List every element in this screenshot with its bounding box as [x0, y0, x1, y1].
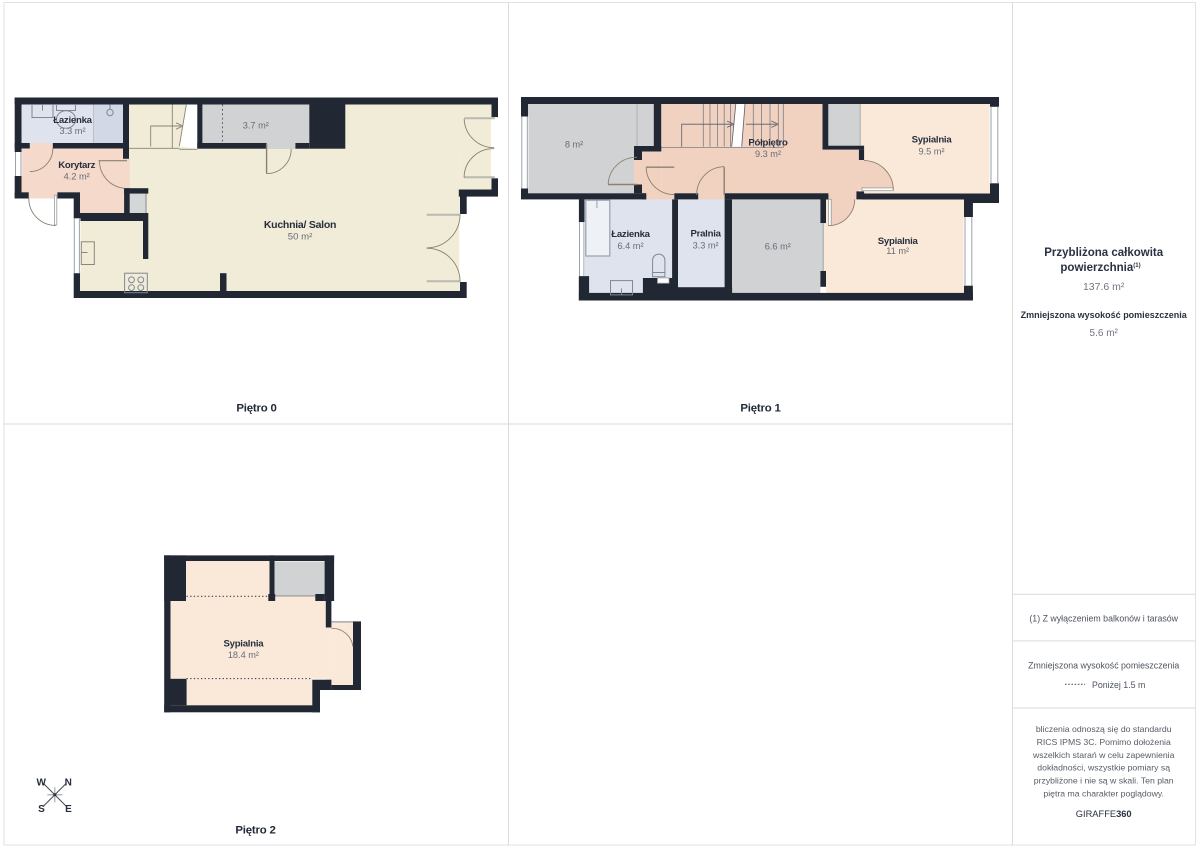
- svg-text:bliczenia odnoszą się do stand: bliczenia odnoszą się do standardu: [1036, 724, 1172, 734]
- svg-text:8 m²: 8 m²: [565, 140, 583, 150]
- svg-text:(1) Z wyłączeniem balkonów i t: (1) Z wyłączeniem balkonów i tarasów: [1029, 614, 1178, 624]
- svg-text:Piętro 0: Piętro 0: [236, 403, 276, 415]
- svg-text:3.3 m²: 3.3 m²: [693, 240, 719, 250]
- svg-text:3.7 m²: 3.7 m²: [243, 121, 269, 131]
- svg-text:Sypialnia: Sypialnia: [912, 135, 953, 146]
- svg-text:18.4 m²: 18.4 m²: [228, 650, 259, 660]
- svg-text:Poniżej 1.5 m: Poniżej 1.5 m: [1092, 680, 1145, 690]
- svg-text:Zmniejszona wysokość pomieszcz: Zmniejszona wysokość pomieszczenia: [1021, 310, 1188, 320]
- svg-text:N: N: [65, 778, 72, 789]
- svg-text:dokładności, wszystkie pomiary: dokładności, wszystkie pomiary są: [1037, 763, 1170, 773]
- svg-text:Łazienka: Łazienka: [611, 229, 650, 240]
- svg-text:Korytarz: Korytarz: [58, 160, 95, 171]
- svg-text:W: W: [36, 778, 46, 789]
- svg-text:powierzchnia(1): powierzchnia(1): [1060, 262, 1140, 274]
- svg-text:Sypialnia: Sypialnia: [223, 639, 264, 650]
- svg-text:6.6 m²: 6.6 m²: [765, 242, 791, 252]
- svg-text:GIRAFFE360: GIRAFFE360: [1076, 809, 1132, 819]
- svg-text:Pralnia: Pralnia: [690, 229, 721, 240]
- svg-text:wszelkich starań w celu zapewn: wszelkich starań w celu zapewnienia: [1032, 750, 1175, 760]
- svg-text:Przybliżona całkowita: Przybliżona całkowita: [1044, 247, 1163, 259]
- svg-text:Łazienka: Łazienka: [53, 115, 92, 126]
- svg-text:9.5 m²: 9.5 m²: [918, 146, 944, 156]
- svg-text:137.6 m²: 137.6 m²: [1083, 281, 1125, 293]
- svg-text:50 m²: 50 m²: [288, 232, 313, 243]
- svg-text:przybliżone i nie są w skali.: przybliżone i nie są w skali. Ten plan: [1034, 776, 1174, 786]
- svg-text:Zmniejszona wysokość pomieszcz: Zmniejszona wysokość pomieszczenia: [1028, 661, 1179, 671]
- svg-text:E: E: [65, 804, 72, 815]
- svg-text:9.3 m²: 9.3 m²: [755, 149, 781, 159]
- svg-text:S: S: [38, 804, 45, 815]
- svg-text:Sypialnia: Sypialnia: [878, 236, 919, 247]
- svg-text:4.2 m²: 4.2 m²: [64, 172, 90, 182]
- svg-text:3.3 m²: 3.3 m²: [59, 126, 85, 136]
- svg-text:Piętro 2: Piętro 2: [235, 825, 275, 837]
- svg-text:Piętro 1: Piętro 1: [740, 403, 781, 415]
- svg-text:RICS IPMS 3C. Pomimo dołożenia: RICS IPMS 3C. Pomimo dołożenia: [1037, 737, 1171, 747]
- svg-text:Kuchnia/ Salon: Kuchnia/ Salon: [264, 219, 336, 231]
- svg-text:5.6 m²: 5.6 m²: [1090, 328, 1119, 339]
- svg-text:6.4 m²: 6.4 m²: [617, 241, 643, 251]
- svg-text:11 m²: 11 m²: [886, 246, 909, 256]
- svg-text:Półpiętro: Półpiętro: [748, 138, 788, 149]
- svg-text:piętra ma charakter poglądowy.: piętra ma charakter poglądowy.: [1043, 789, 1164, 799]
